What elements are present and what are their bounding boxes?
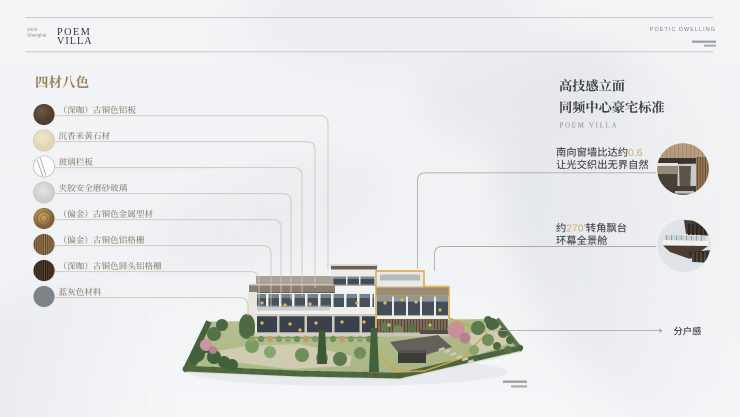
svg-text:0.6: 0.6 — [628, 148, 643, 159]
svg-text:Shanghai: Shanghai — [27, 32, 46, 37]
svg-text:VILLA: VILLA — [57, 36, 93, 47]
svg-text:POEM VILLA: POEM VILLA — [560, 123, 619, 130]
svg-text:POETIC DWELLING: POETIC DWELLING — [650, 27, 716, 33]
svg-text:2025: 2025 — [27, 27, 38, 32]
svg-text:270°: 270° — [566, 224, 587, 235]
